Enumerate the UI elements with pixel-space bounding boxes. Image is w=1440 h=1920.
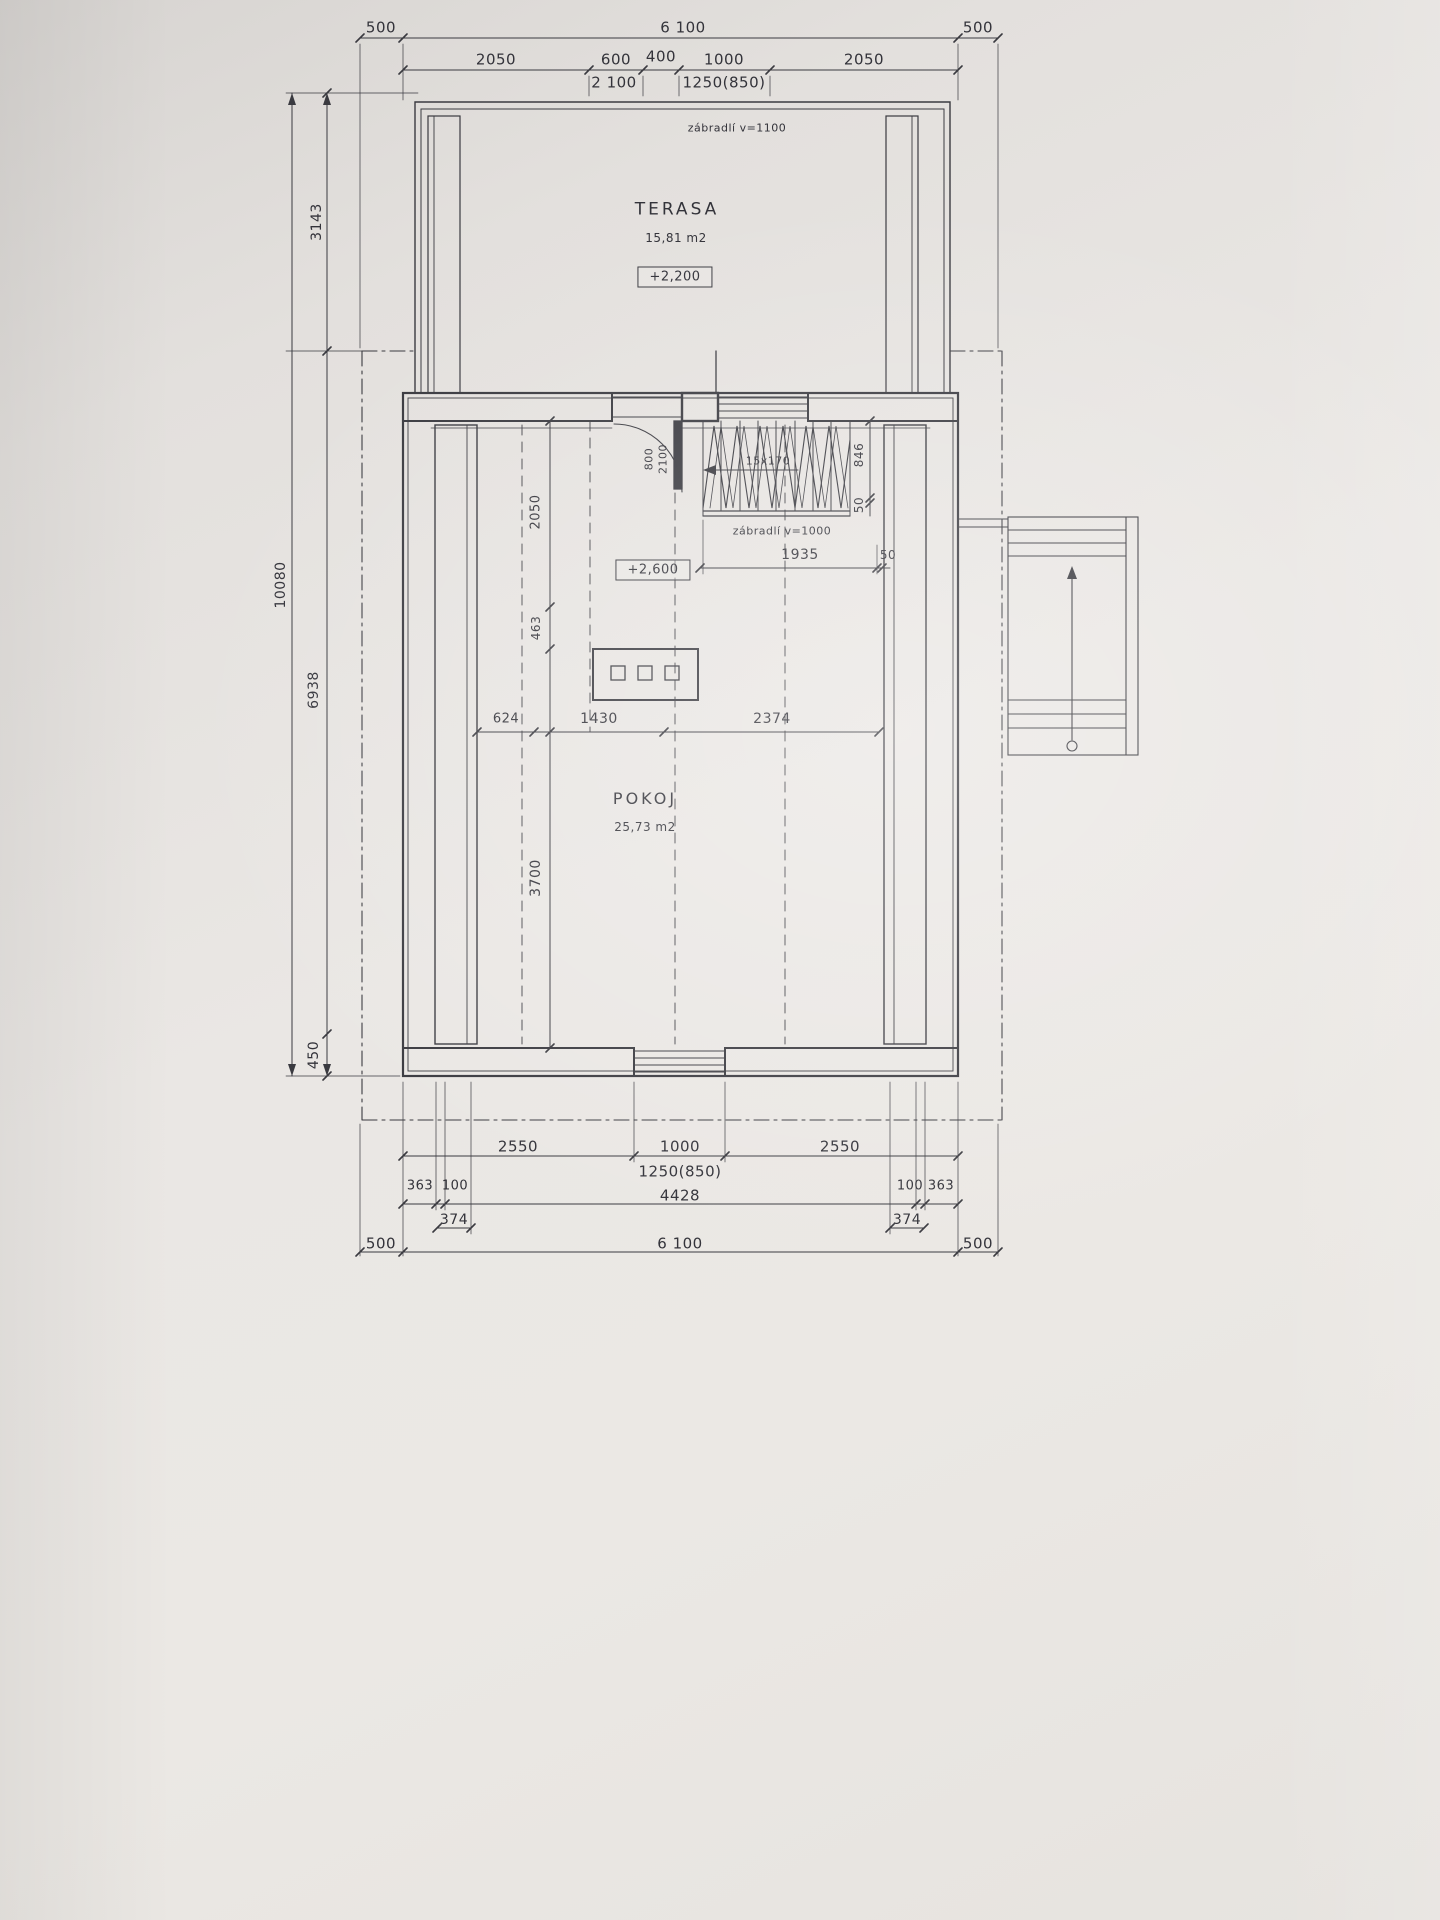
door-width-label: 800 (644, 448, 655, 471)
room-level-badge: +2,600 (615, 560, 690, 581)
external-staircase (958, 517, 1138, 755)
dim-interior-624: 624 (493, 713, 519, 726)
terrace-walls (415, 102, 950, 393)
dim-left-terrace-depth: 3143 (310, 203, 324, 241)
dim-bottom-1000: 1000 (660, 1140, 700, 1155)
room-name: POKOJ (613, 791, 677, 807)
stairs-steps-label: 15x170 (746, 456, 791, 467)
dim-top-overhang-left: 500 (366, 21, 396, 36)
dim-bottom-374-right: 374 (893, 1213, 921, 1227)
terrace-name: TERASA (635, 202, 720, 219)
room-inner-strip-walls (435, 425, 926, 1044)
room-area: 25,73 m2 (614, 821, 676, 833)
dim-interior-2050: 2050 (530, 494, 543, 529)
dim-interior-3700: 3700 (529, 859, 543, 897)
dimension-lines (286, 38, 998, 1256)
dim-bottom-total: 6 100 (657, 1237, 702, 1252)
dim-bottom-363-left: 363 (407, 1180, 433, 1193)
dim-bottom-100-left: 100 (442, 1180, 468, 1193)
external-stair-arrow (1067, 566, 1077, 579)
dim-top-window-spec: 1250(850) (682, 76, 765, 91)
dim-top-600: 600 (601, 53, 631, 68)
dim-top-1000: 1000 (704, 53, 744, 68)
interior-stairs (703, 351, 850, 516)
room-outer-walls (403, 393, 958, 1076)
dim-top-door-height: 2 100 (591, 76, 636, 91)
terrace-door (612, 397, 682, 492)
terrace-railing-label: zábradlí v=1100 (688, 123, 787, 134)
floor-plan-photo: 500 6 100 500 2050 600 400 1000 2050 2 1… (0, 0, 1440, 1920)
stairs-railing-label: zábradlí v=1000 (733, 526, 832, 537)
dim-bottom-2550-left: 2550 (498, 1140, 538, 1155)
dim-bottom-100-right: 100 (897, 1180, 923, 1193)
dim-left-total: 10080 (274, 561, 288, 608)
dim-landing-1935: 1935 (781, 548, 819, 562)
dim-top-2050-right: 2050 (844, 53, 884, 68)
fireplace-block (593, 649, 698, 700)
dim-top-overhang-right: 500 (963, 21, 993, 36)
dim-interior-1430: 1430 (580, 712, 618, 726)
dim-left-house-depth: 6938 (307, 671, 321, 709)
dim-interior-463: 463 (530, 616, 542, 640)
dim-bottom-374-left: 374 (440, 1213, 468, 1227)
dim-left-overhang: 450 (307, 1041, 321, 1069)
dim-top-2050-left: 2050 (476, 53, 516, 68)
door-height-label: 2100 (658, 444, 669, 474)
dim-bottom-window-spec: 1250(850) (638, 1165, 721, 1180)
dim-bottom-overhang-left: 500 (366, 1237, 396, 1252)
stair-direction-arrow (703, 465, 716, 475)
dim-interior-2374: 2374 (753, 712, 791, 726)
dim-bottom-4428: 4428 (660, 1189, 700, 1204)
dim-landing-gap-50: 50 (880, 549, 896, 561)
dim-bottom-overhang-right: 500 (963, 1237, 993, 1252)
terrace-level-badge: +2,200 (637, 267, 712, 288)
terrace-area: 15,81 m2 (645, 232, 707, 244)
dim-bottom-363-right: 363 (928, 1180, 954, 1193)
dim-stair-gap: 50 (853, 497, 865, 513)
dim-bottom-2550-right: 2550 (820, 1140, 860, 1155)
dim-top-400: 400 (646, 50, 676, 65)
dim-top-total: 6 100 (660, 21, 705, 36)
dim-stair-flight-width: 846 (853, 443, 865, 467)
floor-plan-drawing (0, 0, 1440, 1920)
